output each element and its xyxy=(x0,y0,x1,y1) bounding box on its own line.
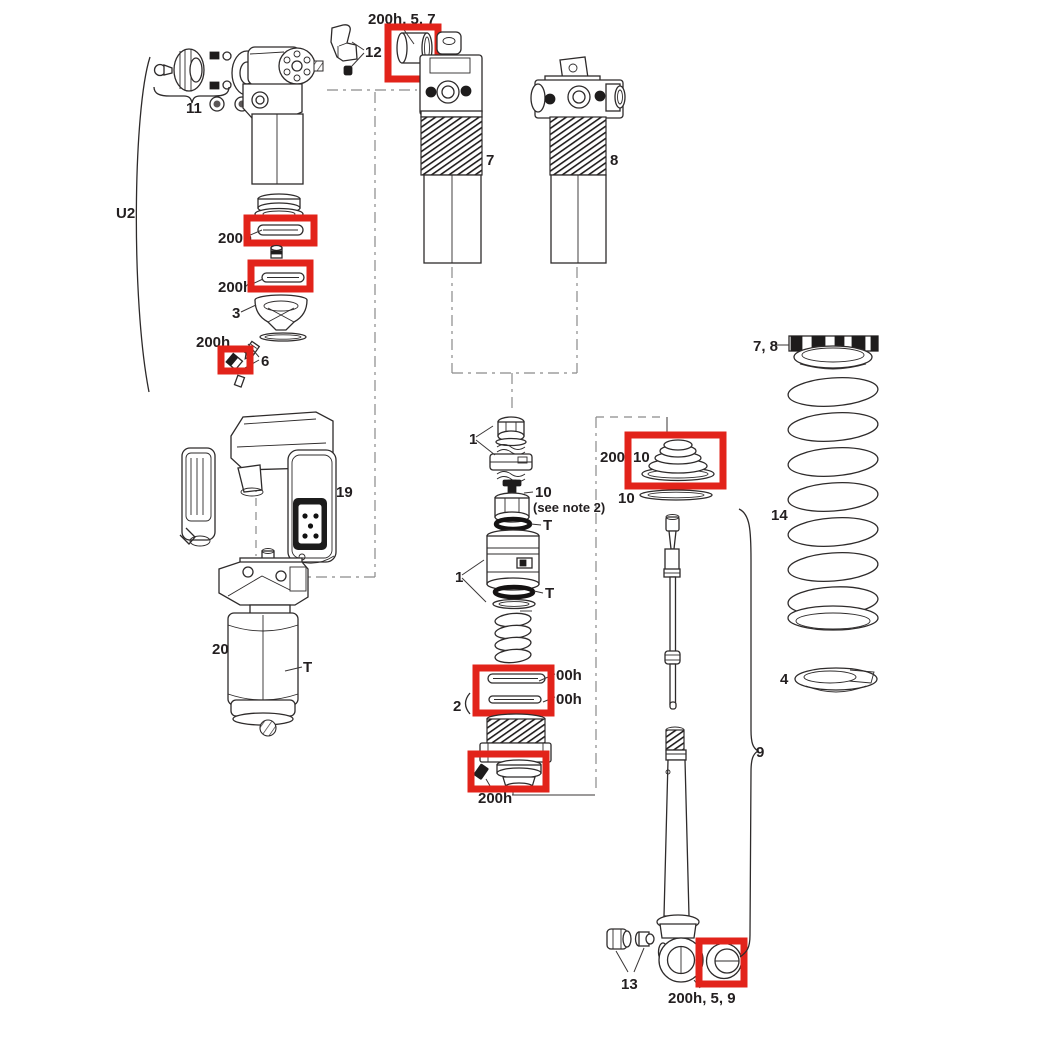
seal-stack-lower-label: 00h xyxy=(556,691,582,708)
exploded-diagram-canvas: U2 11 xyxy=(0,0,1045,1046)
part-13-fasteners-group xyxy=(607,929,654,972)
wiper-prefix-label: 200 xyxy=(600,449,625,466)
part-11-label: 11 xyxy=(186,100,202,117)
wiper-10-label: 10 xyxy=(633,449,650,466)
washer-10-label: 10 xyxy=(618,490,635,507)
part-14-label: 14 xyxy=(771,507,788,524)
part-10-adjuster-group xyxy=(495,480,533,522)
part-10-note: (see note 2) xyxy=(533,500,605,515)
lower-seal-group xyxy=(248,273,304,286)
coil-spring-group xyxy=(787,375,879,630)
spring-seat-group xyxy=(795,668,877,692)
small-spring-group xyxy=(495,611,532,664)
t-reservoir-label: T xyxy=(303,659,312,676)
wiper-seal-group xyxy=(642,440,714,481)
damper-rod-group xyxy=(664,515,680,710)
small-valve-group xyxy=(271,246,282,259)
group-u2-label: U2 xyxy=(116,205,135,222)
part-10-label: 10 xyxy=(535,484,552,501)
part-6-label: 6 xyxy=(261,353,269,370)
part-13-label: 13 xyxy=(621,976,638,993)
part-12-label: 12 xyxy=(365,44,382,61)
part-20-label: 20 xyxy=(212,641,229,658)
upper-seal-group xyxy=(248,225,303,236)
t-oring-upper-group xyxy=(496,519,541,529)
part-19-label: 19 xyxy=(336,484,353,501)
part-3-label: 3 xyxy=(232,305,240,322)
part-12-lever-group xyxy=(331,25,364,75)
group-9-bracket xyxy=(739,509,758,957)
part-4-label: 4 xyxy=(780,671,789,688)
shaft-nut-stack-group xyxy=(476,417,532,482)
part-19-module-group xyxy=(180,412,336,563)
part-20-reservoir-group xyxy=(219,549,308,737)
part-2-label: 2 xyxy=(453,698,461,715)
t-upper-label: T xyxy=(543,517,552,534)
part-8-label: 8 xyxy=(610,152,618,169)
part-3-group xyxy=(241,295,307,341)
damper-unit-top-left xyxy=(243,47,323,220)
bottom-bushing-label: 200h, 5, 9 xyxy=(668,990,736,1007)
part-1-upper-label: 1 xyxy=(469,431,477,448)
part-7-label: 7 xyxy=(486,152,494,169)
preload-ring-label: 7, 8 xyxy=(753,338,778,355)
part-1-lower-label: 1 xyxy=(455,569,463,586)
t-lower-label: T xyxy=(545,585,554,602)
shock-body-7-group xyxy=(420,32,482,263)
seal-head-label: 200h xyxy=(478,790,512,807)
part-9-label: 9 xyxy=(756,744,764,761)
seal-stack-upper-label: 00h xyxy=(556,667,582,684)
diagram-svg: U2 11 xyxy=(0,0,1045,1046)
washer-10-group xyxy=(640,490,712,500)
preload-ring-group xyxy=(776,336,878,369)
group-u2-bracket xyxy=(136,57,150,392)
lower-seal-label: 200h xyxy=(218,279,252,296)
piston-assembly-group xyxy=(462,530,539,602)
